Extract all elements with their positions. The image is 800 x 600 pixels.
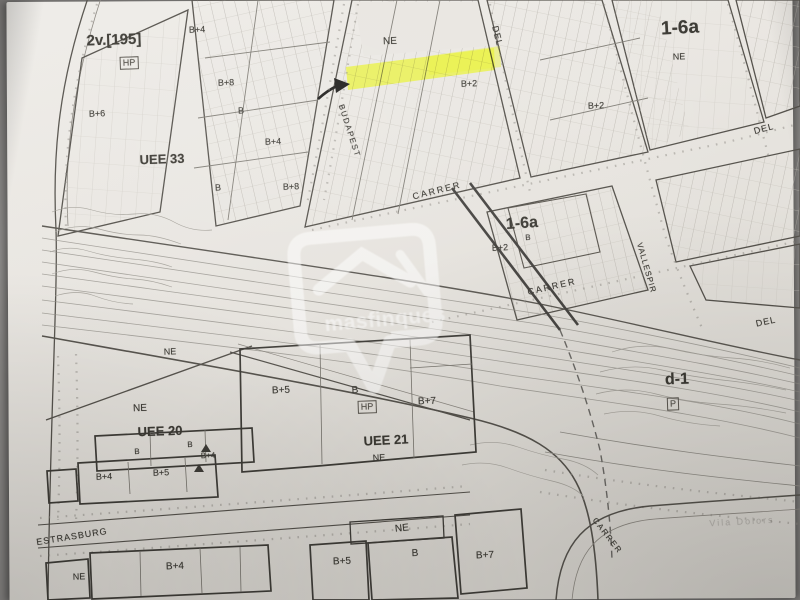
building-height-label: B+2	[461, 79, 478, 89]
street-label: ESTRASBURG	[36, 527, 109, 547]
street-label: VALLESPIR	[635, 242, 657, 294]
hp-tag: HP	[120, 56, 139, 70]
street-label: DEL	[753, 122, 775, 136]
faint-place-label: Vila Dolors	[709, 516, 775, 528]
building-height-label: B+5	[272, 386, 290, 397]
zone-label: UEE 21	[363, 432, 408, 447]
zone-label: 1-6a	[505, 215, 538, 233]
zone-label: NE	[383, 37, 397, 47]
building-height-label: B+4	[166, 562, 184, 573]
street-label: CARRER	[412, 181, 463, 202]
building-height-label: B	[238, 106, 244, 115]
street-label: CARRER	[527, 277, 578, 297]
street-label: DEL	[755, 315, 777, 328]
parking-tag: P	[667, 397, 679, 410]
zone-label: NE	[395, 523, 410, 534]
zone-label: NE	[164, 347, 177, 356]
plan-reference: 2v.[195]	[86, 32, 141, 49]
zone-label: UEE 20	[137, 424, 182, 439]
building-height-label: B	[187, 441, 193, 449]
street-label: DEL	[490, 25, 504, 47]
building-height-label: B+6	[89, 109, 106, 119]
watermark-logo: masfinques	[279, 212, 491, 433]
zone-label: d-1	[665, 372, 690, 389]
building-height-label: B+5	[333, 557, 351, 568]
building-height-label: B+2	[588, 101, 605, 111]
building-height-label: B	[525, 234, 531, 242]
zone-label: NE	[373, 453, 386, 463]
street-label: CARRER	[591, 517, 624, 556]
building-height-label: B+5	[153, 468, 170, 478]
building-height-label: B+4	[189, 25, 206, 35]
building-height-label: B	[134, 448, 140, 456]
building-height-label: B+4	[201, 452, 216, 461]
building-height-label: B+8	[218, 78, 235, 88]
building-height-label: B+4	[265, 137, 282, 147]
map-photo: 2v.[195]HPHPPUEE 33UEE 20UEE 211-6a1-6ad…	[0, 0, 800, 600]
zone-label: 1-6a	[661, 18, 700, 39]
street-label: BUDAPEST	[337, 104, 362, 159]
building-height-label: B+7	[476, 551, 494, 562]
zone-label: UEE 33	[139, 152, 184, 167]
building-height-label: B+2	[492, 243, 509, 253]
building-height-label: B	[215, 183, 221, 192]
zone-label: NE	[133, 404, 147, 414]
zone-label: NE	[73, 572, 86, 581]
building-height-label: B+4	[96, 472, 113, 482]
building-height-label: B	[411, 549, 418, 559]
zone-label: NE	[673, 52, 686, 61]
building-height-label: B+8	[283, 182, 300, 192]
